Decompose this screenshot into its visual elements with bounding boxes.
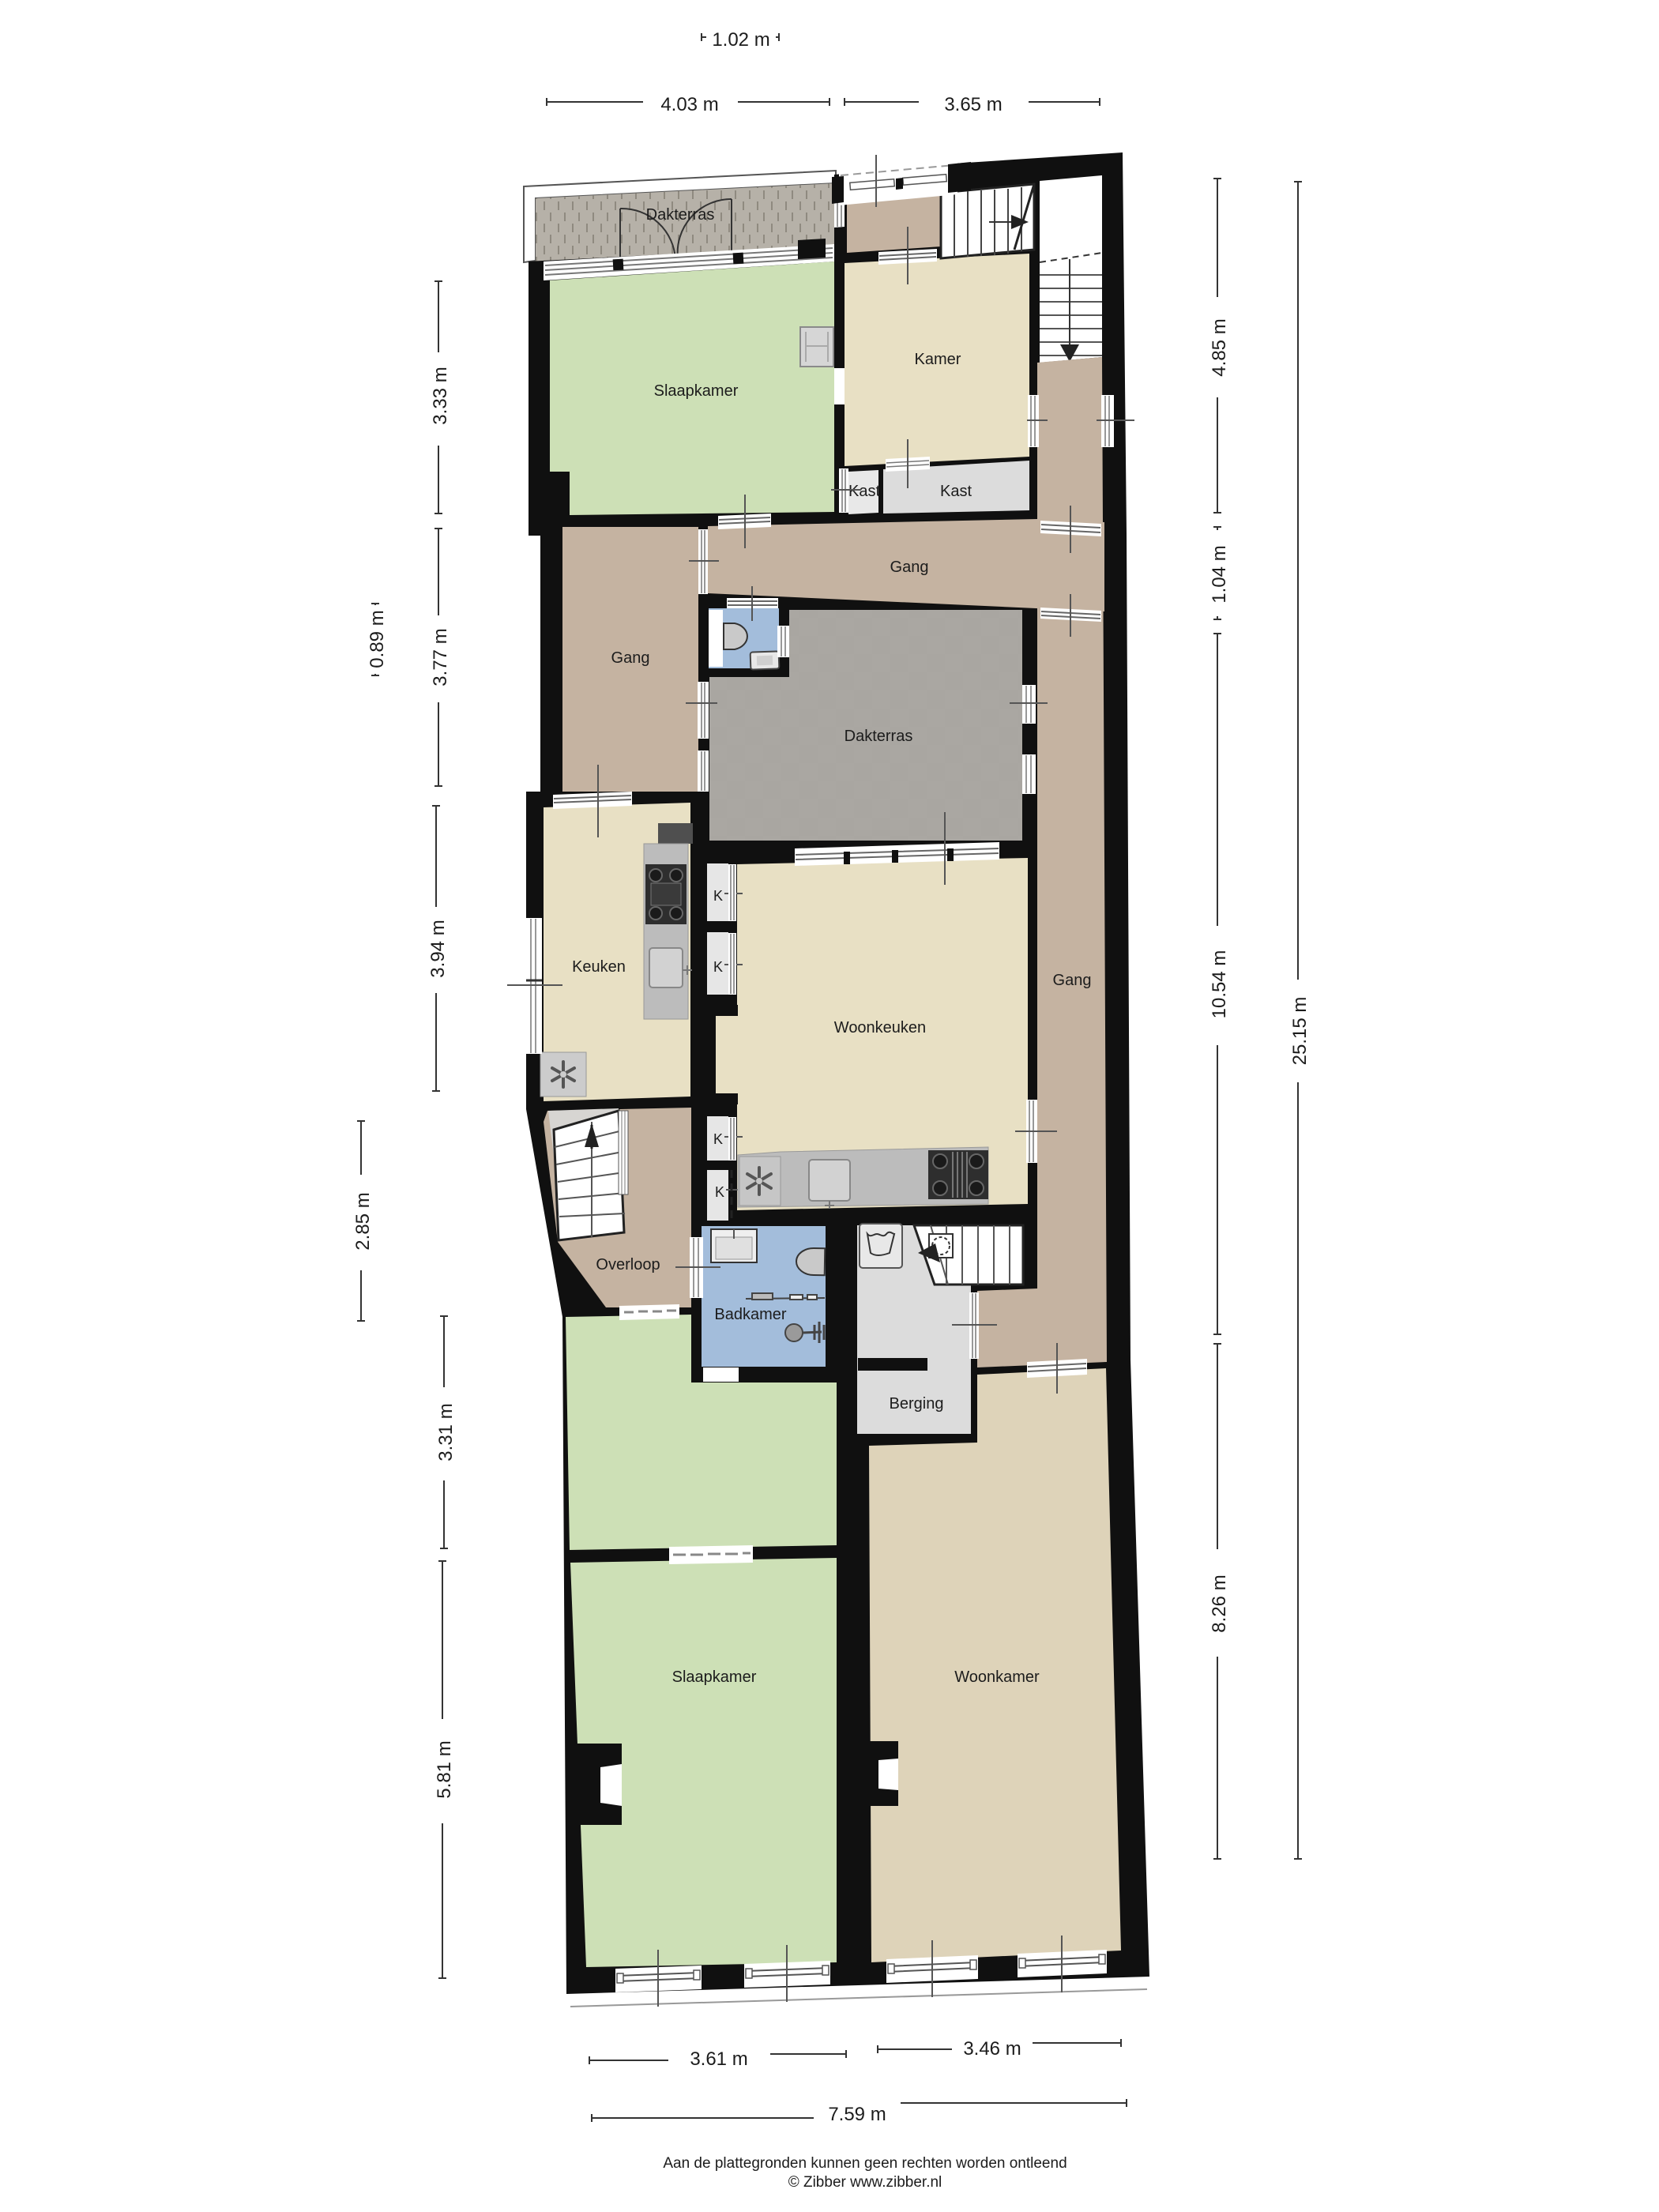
svg-text:2.85 m: 2.85 m — [352, 1192, 374, 1250]
svg-text:10.54 m: 10.54 m — [1209, 950, 1230, 1019]
svg-text:K: K — [713, 959, 723, 975]
svg-text:Berging: Berging — [890, 1395, 944, 1413]
svg-text:Dakterras: Dakterras — [646, 206, 715, 224]
svg-text:© Zibber www.zibber.nl: © Zibber www.zibber.nl — [788, 2174, 942, 2191]
svg-text:K: K — [713, 888, 723, 904]
svg-text:3.65 m: 3.65 m — [944, 94, 1002, 115]
svg-text:0.89 m: 0.89 m — [367, 610, 388, 668]
svg-text:5.81 m: 5.81 m — [434, 1740, 455, 1798]
svg-text:7.59 m: 7.59 m — [828, 2104, 886, 2125]
svg-text:Gang: Gang — [1053, 972, 1092, 989]
svg-text:3.33 m: 3.33 m — [430, 367, 451, 424]
svg-text:3.46 m: 3.46 m — [963, 2038, 1021, 2060]
svg-text:Dakterras: Dakterras — [845, 728, 913, 745]
svg-text:Slaapkamer: Slaapkamer — [672, 1668, 757, 1686]
svg-text:8.26 m: 8.26 m — [1209, 1574, 1230, 1632]
svg-text:4.85 m: 4.85 m — [1209, 318, 1230, 376]
svg-text:Aan de plattegronden kunnen ge: Aan de plattegronden kunnen geen rechten… — [663, 2155, 1066, 2172]
svg-text:3.94 m: 3.94 m — [427, 920, 449, 977]
svg-text:Overloop: Overloop — [596, 1256, 660, 1273]
svg-text:K: K — [715, 1184, 724, 1200]
svg-text:Woonkamer: Woonkamer — [954, 1668, 1040, 1686]
svg-text:Kast: Kast — [940, 483, 972, 500]
svg-text:3.61 m: 3.61 m — [690, 2048, 747, 2070]
svg-text:Woonkeuken: Woonkeuken — [834, 1019, 926, 1036]
svg-text:Gang: Gang — [611, 649, 650, 667]
svg-text:K: K — [713, 1131, 723, 1147]
svg-text:25.15 m: 25.15 m — [1289, 997, 1311, 1066]
svg-text:1.02 m: 1.02 m — [712, 29, 769, 51]
svg-text:3.77 m: 3.77 m — [430, 628, 451, 686]
svg-text:Kamer: Kamer — [915, 351, 961, 368]
svg-text:3.31 m: 3.31 m — [435, 1403, 457, 1461]
svg-text:Gang: Gang — [890, 559, 929, 576]
svg-text:Keuken: Keuken — [572, 958, 626, 976]
svg-text:Slaapkamer: Slaapkamer — [654, 382, 739, 400]
svg-text:1.04 m: 1.04 m — [1209, 545, 1230, 603]
svg-text:Badkamer: Badkamer — [714, 1306, 786, 1323]
svg-text:4.03 m: 4.03 m — [660, 94, 718, 115]
svg-text:Kast: Kast — [848, 483, 880, 500]
